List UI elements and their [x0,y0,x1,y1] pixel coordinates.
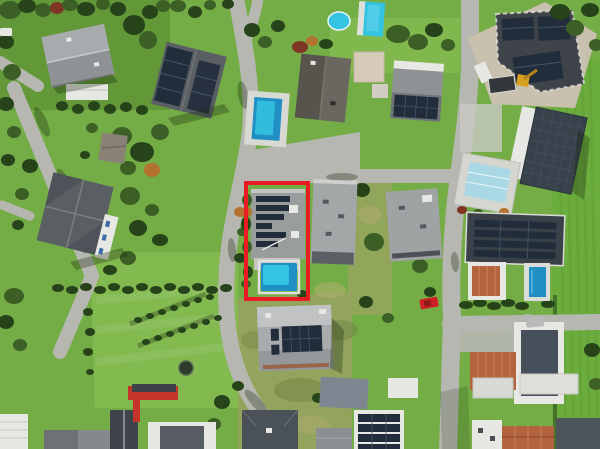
blue-gray-flat-roof [319,377,369,409]
hip-roof-solar-house-bottom-center [257,305,333,372]
white-flat-small [388,378,418,398]
highlighted-property-pool [259,261,299,293]
solar-strip-house-right [465,212,565,265]
rectangular-pool-top [357,1,385,37]
garden-pool-center [244,91,290,148]
dark-flat-roof-bottom-right [556,418,600,449]
tan-canopy [354,52,384,82]
small-blue-pool-right [524,263,550,301]
driveway-right [460,316,518,352]
gray-car [526,316,545,328]
brown-gable-house-center [295,54,351,123]
trampoline [179,361,193,375]
white-flat-roof-1 [520,374,578,394]
flat-roof-building-2 [386,188,443,261]
white-flat-roof-2 [473,378,513,398]
terracotta-annex-roof [472,266,500,296]
flat-roof-building-1 [311,179,358,264]
pool-terrace-right [454,153,520,214]
white-house-bottom-left [0,414,28,449]
white-car-top-left [0,28,12,36]
circular-pool [328,12,350,30]
construction-shed [488,75,516,93]
solar-row-house-bottom [354,410,404,449]
aerial-photo [0,0,600,449]
aerial-scene [0,0,600,449]
solar-house-top-center [390,60,444,121]
garage-roof [372,84,388,98]
